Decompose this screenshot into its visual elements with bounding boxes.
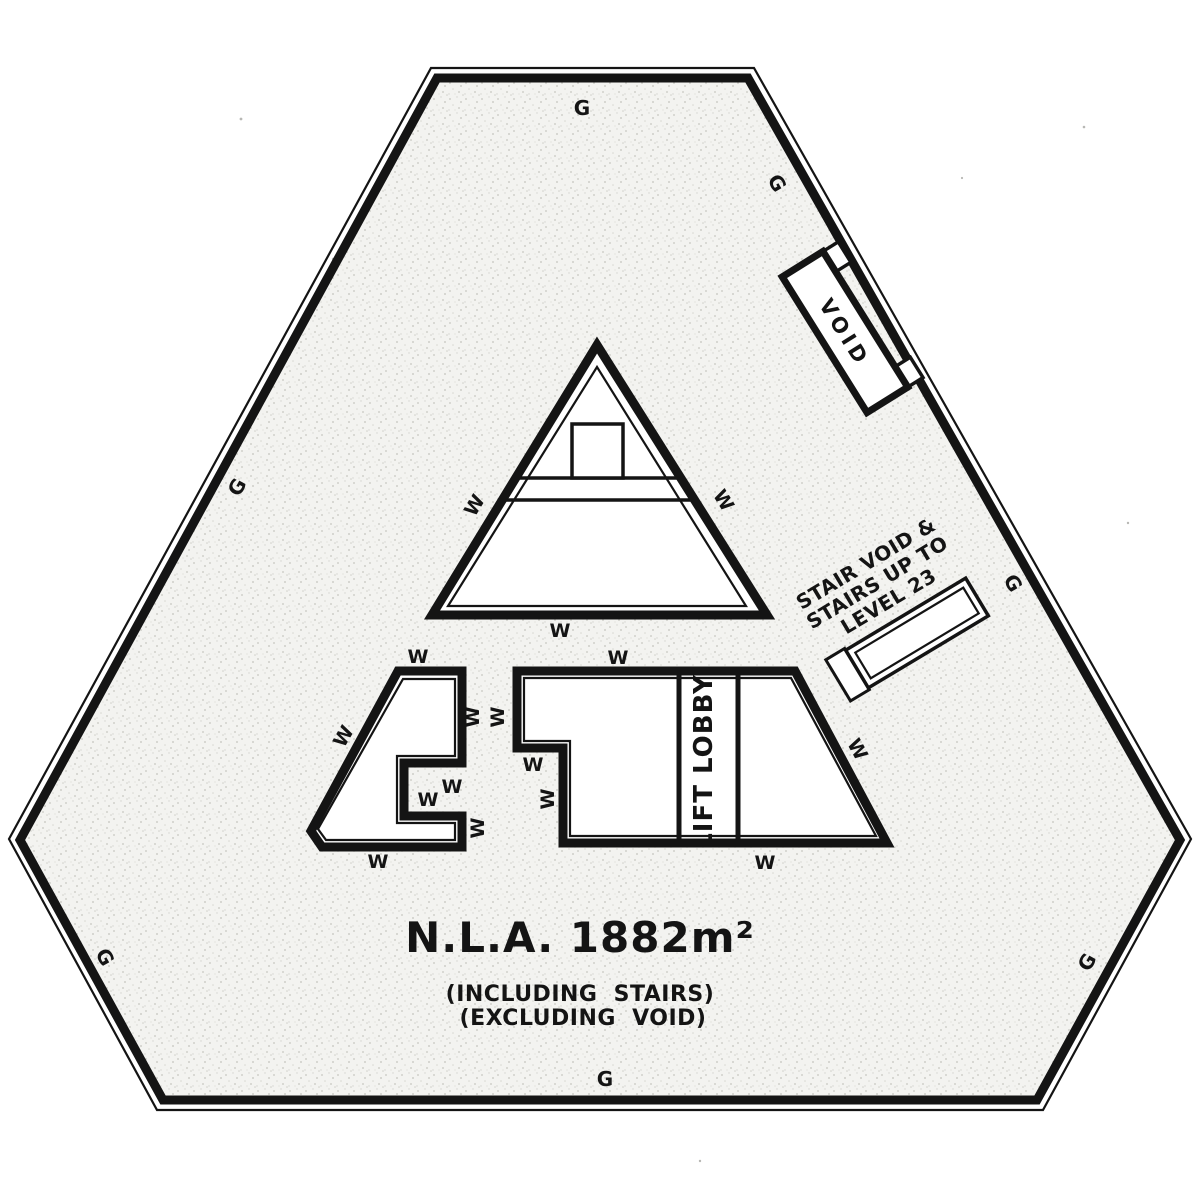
wall-label: W bbox=[523, 754, 544, 776]
floor-plan-page: LIFT LOBBY VOID STAIR VOID & STAIRS UP T… bbox=[0, 0, 1200, 1200]
lift-lobby-label: LIFT LOBBY bbox=[689, 674, 719, 850]
wall-label: W bbox=[467, 817, 489, 838]
wall-label: W bbox=[408, 646, 429, 668]
wall-label: W bbox=[755, 852, 776, 874]
floor-plan-drawing: LIFT LOBBY VOID STAIR VOID & STAIRS UP T… bbox=[0, 0, 1200, 1200]
wall-label: W bbox=[442, 776, 463, 798]
core-duct-box bbox=[572, 424, 623, 478]
wall-label: W bbox=[608, 647, 629, 669]
wall-label: W bbox=[487, 706, 509, 727]
wall-label: W bbox=[418, 789, 439, 811]
wall-label: W bbox=[368, 851, 389, 873]
glazing-label: G bbox=[597, 1067, 613, 1091]
glazing-label: G bbox=[574, 96, 590, 120]
wall-label: W bbox=[462, 706, 484, 727]
nla-title: N.L.A. 1882m² bbox=[405, 913, 755, 962]
nla-note-including: (INCLUDING STAIRS) bbox=[446, 982, 715, 1007]
nla-note-excluding: (EXCLUDING VOID) bbox=[460, 1006, 707, 1031]
wall-label: W bbox=[537, 788, 559, 809]
wall-label: W bbox=[550, 620, 571, 642]
